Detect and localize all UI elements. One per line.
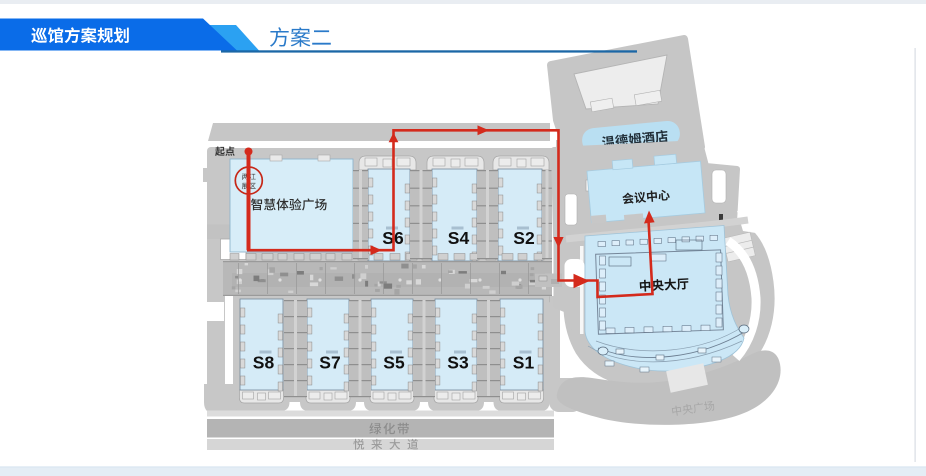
svg-text:S1: S1 (513, 352, 535, 372)
svg-text:S5: S5 (383, 352, 405, 372)
svg-text:S4: S4 (448, 228, 470, 248)
svg-text:S3: S3 (447, 352, 469, 372)
svg-text:S8: S8 (253, 352, 275, 372)
svg-text:S2: S2 (513, 228, 535, 248)
svg-text:S7: S7 (319, 352, 340, 372)
